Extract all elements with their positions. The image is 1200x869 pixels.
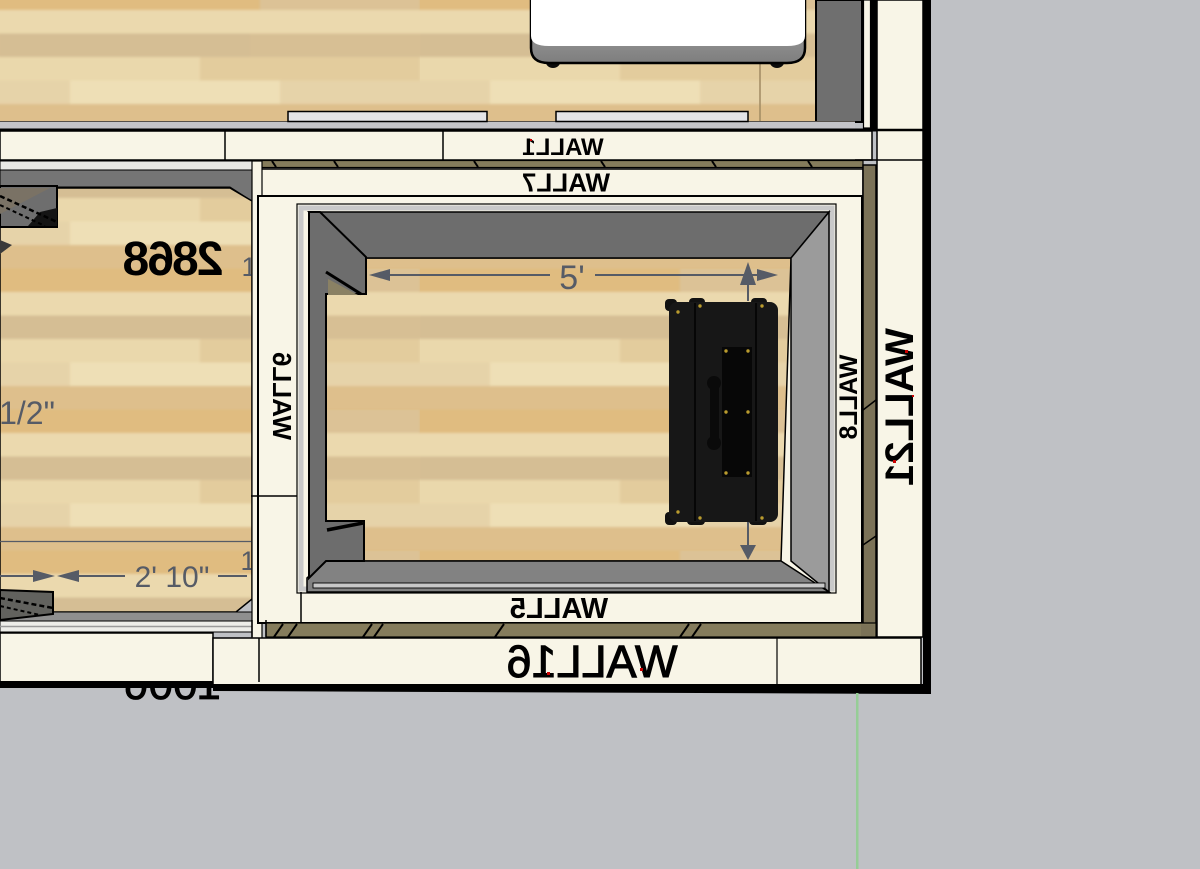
svg-text:WALL8: WALL8 xyxy=(835,355,863,440)
svg-text:WALL16: WALL16 xyxy=(507,636,678,687)
svg-text:1/2": 1/2" xyxy=(0,395,55,431)
svg-text:5': 5' xyxy=(559,259,584,297)
svg-text:2868: 2868 xyxy=(123,233,223,286)
svg-text:2' 10": 2' 10" xyxy=(135,561,210,594)
svg-text:WALL6: WALL6 xyxy=(267,352,297,440)
svg-text:WALL5: WALL5 xyxy=(510,593,608,625)
svg-text:WALL7: WALL7 xyxy=(522,168,610,198)
svg-text:WALL1: WALL1 xyxy=(522,134,603,161)
svg-text:WALL21: WALL21 xyxy=(878,328,922,486)
